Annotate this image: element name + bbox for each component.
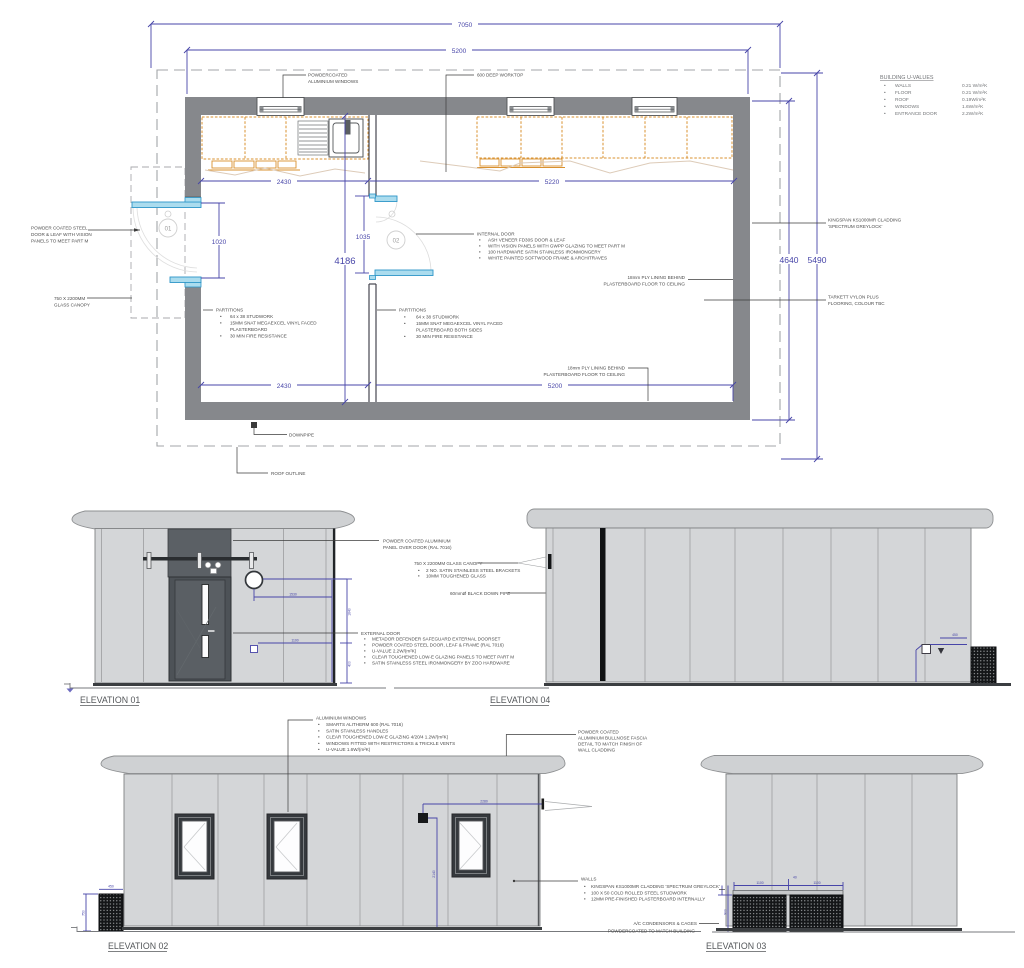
svg-text:30 MIN FIRE RESISTANCE: 30 MIN FIRE RESISTANCE [416, 334, 473, 339]
svg-text:1100: 1100 [756, 881, 763, 885]
svg-text:WALL CLADDING: WALL CLADDING [578, 748, 616, 753]
svg-text:PARTITIONS: PARTITIONS [399, 308, 426, 313]
svg-text:ELEVATION 01: ELEVATION 01 [80, 695, 140, 705]
svg-text:WHITE PAINTED SOFTWOOD FRAME &: WHITE PAINTED SOFTWOOD FRAME & ARCHITRAV… [488, 256, 607, 261]
svg-text:12MM PRE-FINISHED PLASTERBOARD: 12MM PRE-FINISHED PLASTERBOARD INTERNALL… [591, 897, 705, 902]
svg-text:POWDER COATED ALUMINIUM: POWDER COATED ALUMINIUM [383, 539, 451, 544]
svg-text:PLASTERBOARD FLOOR TO CEILING: PLASTERBOARD FLOOR TO CEILING [603, 282, 685, 287]
svg-text:450: 450 [108, 885, 114, 889]
svg-text:FLOOR: FLOOR [895, 90, 912, 96]
svg-text:40: 40 [793, 876, 797, 880]
svg-text:0.21 W/m²K: 0.21 W/m²K [962, 83, 988, 89]
svg-text:ALUMINIUM WINDOWS: ALUMINIUM WINDOWS [316, 716, 366, 721]
svg-text:DOWNPIPE: DOWNPIPE [289, 433, 314, 438]
svg-text:POWDER COATED: POWDER COATED [578, 730, 619, 735]
svg-text:7050: 7050 [458, 22, 473, 29]
svg-text:CLEAR TOUGHENED LOW-E GLAZING: CLEAR TOUGHENED LOW-E GLAZING PANELS TO … [372, 655, 514, 660]
svg-text:4640: 4640 [780, 255, 799, 265]
svg-text:5200: 5200 [548, 383, 563, 390]
svg-text:GLASS CANOPY: GLASS CANOPY [54, 303, 90, 308]
svg-text:60mmØ BLACK DOWN PIPE: 60mmØ BLACK DOWN PIPE [450, 591, 510, 596]
svg-text:EXTERNAL DOOR: EXTERNAL DOOR [361, 631, 401, 636]
svg-text:PLASTERBOARD BOTH SIDES: PLASTERBOARD BOTH SIDES [416, 328, 482, 333]
svg-text:02: 02 [393, 239, 400, 245]
svg-text:POWDER COATED STEEL DOOR, LEAF: POWDER COATED STEEL DOOR, LEAF & FRAME (… [372, 643, 504, 648]
svg-text:INTERNAL DOOR: INTERNAL DOOR [477, 232, 515, 237]
svg-text:DETAIL TO MATCH FINISH OF: DETAIL TO MATCH FINISH OF [578, 742, 643, 747]
svg-text:FLOORING, COLOUR TBC: FLOORING, COLOUR TBC [828, 301, 885, 306]
svg-text:1530: 1530 [289, 593, 297, 597]
svg-text:0.21 W/m²K: 0.21 W/m²K [962, 90, 988, 96]
svg-text:ASH VENEER FD30S DOOR & LEAF: ASH VENEER FD30S DOOR & LEAF [488, 238, 566, 243]
svg-text:POWDERCOATED: POWDERCOATED [308, 73, 348, 78]
svg-text:BUILDING U-VALUES: BUILDING U-VALUES [880, 75, 934, 81]
svg-text:2140: 2140 [432, 870, 436, 878]
svg-text:100 HARDWARE SATIN STAINLESS I: 100 HARDWARE SATIN STAINLESS IRONMONGERY [488, 250, 601, 255]
svg-text:WALLS: WALLS [895, 83, 911, 89]
svg-text:5490: 5490 [808, 255, 827, 265]
svg-text:1035: 1035 [356, 234, 371, 241]
svg-text:1.6W/m²K: 1.6W/m²K [962, 104, 984, 110]
svg-text:PARTITIONS: PARTITIONS [216, 308, 243, 313]
svg-text:ELEVATION 04: ELEVATION 04 [490, 695, 550, 705]
svg-text:18mm PLY LINING BEHIND: 18mm PLY LINING BEHIND [567, 366, 625, 371]
svg-text:ROOF: ROOF [895, 97, 909, 103]
svg-text:10MM TOUGHENED GLASS: 10MM TOUGHENED GLASS [426, 574, 486, 579]
svg-text:METADOR DEFENDER SAFEGUARD EXT: METADOR DEFENDER SAFEGUARD EXTERNAL DOOR… [372, 637, 501, 642]
svg-text:64 x 38 STUDWORK: 64 x 38 STUDWORK [416, 315, 460, 320]
svg-text:SATIN STAINLESS STEEL IRONMONG: SATIN STAINLESS STEEL IRONMONGERY BY ZOO… [372, 661, 510, 666]
svg-text:900: 900 [724, 909, 728, 915]
svg-text:ROOF OUTLINE: ROOF OUTLINE [271, 471, 305, 476]
svg-text:CLEAR TOUGHENED LOW-E GLAZING: CLEAR TOUGHENED LOW-E GLAZING 4/20/4 1.2… [326, 735, 449, 740]
svg-text:WALLS: WALLS [581, 877, 596, 882]
svg-text:1020: 1020 [212, 239, 227, 246]
svg-text:2280: 2280 [480, 800, 488, 804]
svg-text:POWDER COATED STEEL: POWDER COATED STEEL [31, 226, 88, 231]
svg-text:1100: 1100 [813, 881, 820, 885]
svg-text:0.19W/m²K: 0.19W/m²K [962, 97, 987, 103]
svg-text:WINDOWS FITTED WITH RESTRICTOR: WINDOWS FITTED WITH RESTRICTORS & TRICKL… [326, 741, 455, 746]
svg-text:750 X 2200MM: 750 X 2200MM [54, 296, 85, 301]
svg-text:ENTRANCE DOOR: ENTRANCE DOOR [895, 111, 938, 117]
svg-text:750: 750 [82, 910, 86, 916]
svg-text:POWDERCOATED TO MATCH BUILDING: POWDERCOATED TO MATCH BUILDING [608, 929, 696, 934]
svg-text:KINGSPAN KS1000MR CLADDING: KINGSPAN KS1000MR CLADDING [828, 218, 902, 223]
svg-text:WINDOWS: WINDOWS [895, 104, 919, 110]
svg-text:2.2W/m²K: 2.2W/m²K [962, 111, 984, 117]
svg-text:U-VALUE 2.2W/(m²K): U-VALUE 2.2W/(m²K) [372, 649, 417, 654]
svg-text:PLASTERBOARD: PLASTERBOARD [230, 327, 268, 332]
svg-text:2430: 2430 [277, 179, 292, 186]
svg-text:15MM SNAT MEGAEXCEL VINYL FACE: 15MM SNAT MEGAEXCEL VINYL FACED [416, 321, 503, 326]
svg-text:U-VALUE 1.6W/(m²K): U-VALUE 1.6W/(m²K) [326, 747, 371, 752]
svg-text:750 X 2200MM GLASS CANOPY: 750 X 2200MM GLASS CANOPY [414, 561, 482, 566]
svg-text:450: 450 [952, 633, 958, 637]
svg-text:A/C CONDENSORS & CAGES: A/C CONDENSORS & CAGES [633, 921, 697, 926]
svg-text:64 x 38 STUDWORK: 64 x 38 STUDWORK [230, 314, 274, 319]
svg-text:DOOR & LEAF WITH VISION: DOOR & LEAF WITH VISION [31, 232, 92, 237]
svg-text:600 DEEP WORKTOP: 600 DEEP WORKTOP [477, 73, 523, 78]
svg-text:1640: 1640 [348, 608, 352, 616]
svg-text:WITH VISION PANELS WITH GWPP G: WITH VISION PANELS WITH GWPP GLAZING TO … [488, 244, 625, 249]
svg-text:KINGSPAN KS1000MR CLADDING 'SP: KINGSPAN KS1000MR CLADDING 'SPECTRUM GRE… [591, 884, 720, 889]
svg-text:2 NO. SATIN STAINLESS STEEL BR: 2 NO. SATIN STAINLESS STEEL BRACKETS [426, 568, 520, 573]
svg-text:ELEVATION 02: ELEVATION 02 [108, 941, 168, 951]
svg-text:30 MIN FIRE RESISTANCE: 30 MIN FIRE RESISTANCE [230, 334, 287, 339]
svg-text:100 X 50 COLD ROLLED STEEL STU: 100 X 50 COLD ROLLED STEEL STUDWORK [591, 890, 688, 895]
svg-text:5200: 5200 [452, 48, 467, 55]
svg-text:ALUMINIUM WINDOWS: ALUMINIUM WINDOWS [308, 79, 358, 84]
svg-text:SATIN STAINLESS HANDLES: SATIN STAINLESS HANDLES [326, 728, 388, 733]
svg-text:01: 01 [165, 227, 172, 233]
svg-text:4186: 4186 [334, 256, 355, 267]
svg-text:PANEL OVER DOOR (RAL 7016): PANEL OVER DOOR (RAL 7016) [383, 545, 452, 550]
svg-text:2430: 2430 [277, 383, 292, 390]
svg-text:18mm PLY LINING BEHIND: 18mm PLY LINING BEHIND [627, 275, 685, 280]
svg-text:ALUMINIUM BULLNOSE FASCIA: ALUMINIUM BULLNOSE FASCIA [578, 736, 648, 741]
svg-text:'SPECTRUM GREYLOCK': 'SPECTRUM GREYLOCK' [828, 224, 882, 229]
svg-text:400: 400 [348, 661, 352, 667]
svg-text:5220: 5220 [545, 179, 560, 186]
svg-text:TARKETT VYLON PLUS: TARKETT VYLON PLUS [828, 295, 879, 300]
svg-text:PANELS TO MEET PART M: PANELS TO MEET PART M [31, 239, 89, 244]
svg-text:PLASTERBOARD FLOOR TO CEILING: PLASTERBOARD FLOOR TO CEILING [543, 372, 625, 377]
svg-text:SMARTS ALITHERM 600 (RAL 7016): SMARTS ALITHERM 600 (RAL 7016) [326, 722, 403, 727]
svg-text:ELEVATION 03: ELEVATION 03 [706, 941, 766, 951]
svg-text:15MM SNAT MEGAEXCEL VINYL FACE: 15MM SNAT MEGAEXCEL VINYL FACED [230, 321, 317, 326]
svg-text:1100: 1100 [291, 639, 298, 643]
